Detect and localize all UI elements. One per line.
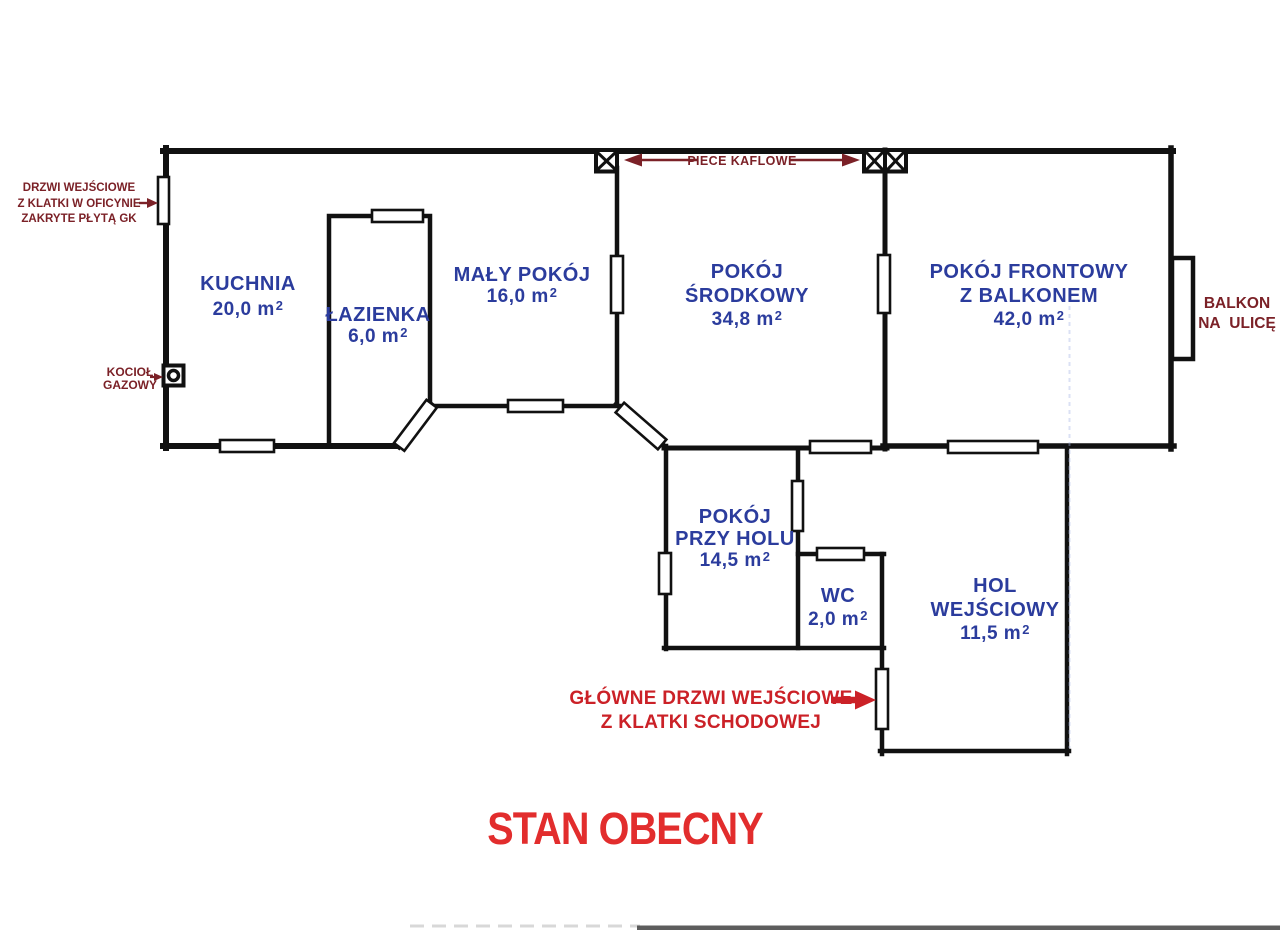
note-line: GAZOWY xyxy=(103,379,157,392)
room-label-pokoj-przy-holu: POKÓJ PRZY HOLU 14,5 m2 xyxy=(675,506,795,573)
area-sup: 2 xyxy=(860,608,868,623)
room-name: MAŁY POKÓJ xyxy=(454,264,591,286)
arrow-covered-entry-head-icon xyxy=(147,198,158,208)
room-label-wc: WC 2,0 m2 xyxy=(808,585,868,632)
note-line: DRZWI WEJŚCIOWE xyxy=(17,181,140,197)
window-symbol-smallroom xyxy=(508,400,563,412)
room-label-kuchnia: KUCHNIA 20,0 m2 xyxy=(200,272,296,323)
door-symbol-main-entrance xyxy=(876,669,888,729)
area-sup: 2 xyxy=(550,285,558,300)
room-label-pokoj-frontowy: POKÓJ FRONTOWY Z BALKONEM 42,0 m2 xyxy=(930,261,1129,333)
room-label-hol-wejsciowy: HOL WEJŚCIOWY 11,5 m2 xyxy=(931,574,1060,647)
floorplan-graphics xyxy=(0,0,1280,930)
room-name: PRZY HOLU xyxy=(675,528,795,550)
door-symbol-middleroom-bottom xyxy=(810,441,871,453)
room-area: 2,0 m2 xyxy=(808,608,868,632)
area-sup: 2 xyxy=(1057,308,1065,323)
room-name: POKÓJ xyxy=(675,506,795,528)
note-line: Z KLATKI W OFICYNIE xyxy=(17,197,140,213)
area-value: 34,8 m xyxy=(712,309,774,330)
scan-artifact-strip xyxy=(637,926,1280,930)
area-sup: 2 xyxy=(400,325,408,340)
room-label-maly-pokoj: MAŁY POKÓJ 16,0 m2 xyxy=(454,264,591,309)
room-label-pokoj-srodkowy: POKÓJ ŚRODKOWY 34,8 m2 xyxy=(685,261,809,333)
area-value: 16,0 m xyxy=(487,286,549,307)
room-area: 14,5 m2 xyxy=(675,550,795,573)
arrow-main-entrance-head-icon xyxy=(855,691,876,710)
area-value: 20,0 m xyxy=(213,299,275,320)
room-name: HOL xyxy=(931,574,1060,598)
window-symbol-bathroom xyxy=(372,210,423,222)
note-line: BALKON xyxy=(1198,294,1276,314)
area-sup: 2 xyxy=(763,549,771,564)
window-symbol-kitchen xyxy=(220,440,274,452)
room-name: Z BALKONEM xyxy=(930,285,1129,309)
arrow-right-head-icon xyxy=(842,154,860,167)
note-gas-boiler: KOCIOŁ GAZOWY xyxy=(103,366,157,391)
room-name: POKÓJ xyxy=(685,261,809,285)
area-value: 14,5 m xyxy=(700,550,762,571)
page-title: STAN OBECNY xyxy=(487,806,763,852)
area-value: 6,0 m xyxy=(348,326,399,347)
area-sup: 2 xyxy=(1022,622,1030,637)
note-main-entrance: GŁÓWNE DRZWI WEJŚCIOWE Z KLATKI SCHODOWE… xyxy=(569,687,852,735)
door-symbol-middleroom-left xyxy=(611,256,623,313)
room-name: WC xyxy=(808,585,868,608)
room-name: ŚRODKOWY xyxy=(685,285,809,309)
door-symbol-wc xyxy=(817,548,864,560)
note-line: Z KLATKI SCHODOWEJ xyxy=(569,711,852,735)
note-tiled-stoves: PIECE KAFLOWE xyxy=(687,154,796,168)
room-area: 20,0 m2 xyxy=(200,297,296,323)
door-symbol-diagonal-middleroom xyxy=(616,403,667,450)
door-symbol-covered-entry xyxy=(158,177,169,224)
door-symbol-bathroom-diagonal xyxy=(394,400,437,451)
room-area: 16,0 m2 xyxy=(454,286,591,309)
room-area: 6,0 m2 xyxy=(325,326,430,348)
note-balcony: BALKON NA ULICĘ xyxy=(1198,294,1276,334)
arrows-group xyxy=(139,154,876,710)
note-line: GŁÓWNE DRZWI WEJŚCIOWE xyxy=(569,687,852,711)
room-area: 42,0 m2 xyxy=(930,308,1129,333)
note-line: PIECE KAFLOWE xyxy=(687,154,796,168)
area-sup: 2 xyxy=(775,308,783,323)
door-symbol-hallroom-left xyxy=(659,553,671,594)
room-name: WEJŚCIOWY xyxy=(931,598,1060,622)
note-covered-entry: DRZWI WEJŚCIOWE Z KLATKI W OFICYNIE ZAKR… xyxy=(17,181,140,228)
floorplan-page: KUCHNIA 20,0 m2 ŁAZIENKA 6,0 m2 MAŁY POK… xyxy=(0,0,1280,930)
room-name: KUCHNIA xyxy=(200,272,296,297)
arrow-left-head-icon xyxy=(624,154,642,167)
openings-group xyxy=(158,177,1038,729)
area-value: 42,0 m xyxy=(994,309,1056,330)
room-area: 34,8 m2 xyxy=(685,308,809,333)
note-line: NA ULICĘ xyxy=(1198,314,1276,334)
room-area: 11,5 m2 xyxy=(931,622,1060,647)
note-line: KOCIOŁ xyxy=(103,366,157,379)
area-value: 2,0 m xyxy=(808,609,859,630)
room-label-lazienka: ŁAZIENKA 6,0 m2 xyxy=(325,305,430,348)
note-line: ZAKRYTE PŁYTĄ GK xyxy=(17,212,140,228)
gas-boiler-icon xyxy=(164,366,184,386)
area-sup: 2 xyxy=(276,298,284,313)
balcony-outline xyxy=(1172,258,1193,359)
door-symbol-frontroom-left xyxy=(878,255,890,313)
room-name: POKÓJ FRONTOWY xyxy=(930,261,1129,285)
area-value: 11,5 m xyxy=(960,623,1021,644)
room-name: ŁAZIENKA xyxy=(325,305,430,326)
door-symbol-frontroom-bottom xyxy=(948,441,1038,453)
